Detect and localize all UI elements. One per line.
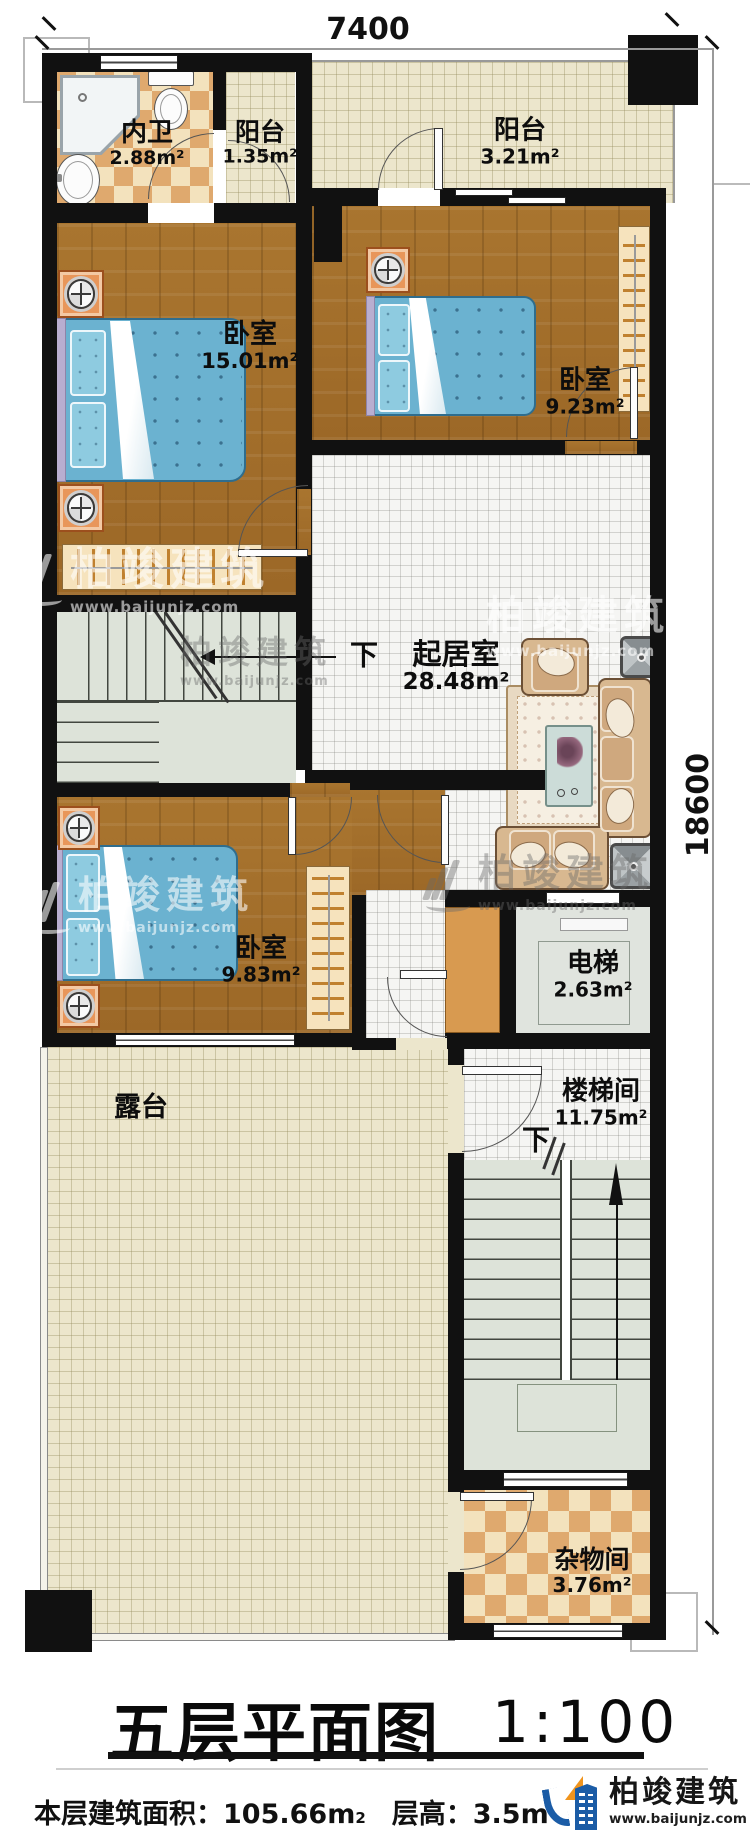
title-underline (108, 1752, 644, 1759)
logo-swoosh (542, 1786, 571, 1829)
wall (500, 890, 516, 1049)
stairs-direction-arrow (200, 649, 215, 665)
room-label-terrace: 露台 (114, 1093, 168, 1123)
divider-line (56, 1768, 708, 1770)
floor-height-label: 层高： (392, 1792, 473, 1831)
room-label-storage: 杂物间 3.76m² (553, 1546, 632, 1596)
room-label-bedroom1: 卧室 15.01m² (201, 320, 299, 374)
pillow (70, 330, 106, 396)
dimension-line-top (42, 48, 712, 50)
dimension-value: 18600 (681, 753, 716, 857)
nightstand (58, 984, 100, 1028)
room-label-elevator: 电梯 2.63m² (554, 949, 633, 1001)
door-opening (290, 783, 350, 797)
wall (296, 53, 312, 770)
stairs-center-divider (560, 1160, 572, 1380)
pillow (70, 402, 106, 468)
room-name: 卧室 (546, 366, 625, 395)
wardrobe-hangers (312, 875, 344, 1021)
wall (445, 1033, 666, 1049)
dimension-text-width: 7400 (298, 12, 438, 47)
wall-stub (314, 206, 342, 262)
door-leaf (400, 970, 447, 979)
plan-scale: 1:100 (492, 1688, 679, 1756)
door-opening (396, 1038, 447, 1050)
dimension-tick (665, 12, 680, 27)
bed-headboard (366, 296, 375, 416)
room-area: 9.83m² (222, 963, 301, 985)
door-leaf (462, 1066, 542, 1075)
pillow (66, 918, 100, 976)
stairs-up-line (616, 1205, 618, 1380)
nightstand-lamp (374, 256, 401, 285)
room-name: 起居室 (403, 638, 510, 670)
room-area: 3.21m² (481, 145, 560, 167)
window (115, 1034, 295, 1046)
nightstand (58, 270, 104, 318)
wall (42, 595, 296, 612)
room-area: 28.48m² (403, 670, 510, 696)
room-name: 阳台 (223, 118, 298, 146)
table-flowers (557, 737, 583, 773)
room-label-living: 起居室 28.48m² (403, 638, 510, 696)
down-marker-living: 下 (350, 639, 378, 670)
room-name: 阳台 (481, 116, 560, 145)
nightstand-lamp (66, 992, 92, 1019)
nightstand-lamp (66, 814, 92, 841)
logo-url-text: www.baijunjz.com (609, 1811, 747, 1827)
door-opening (378, 188, 440, 206)
down-marker-stairwell: 下 (522, 1124, 550, 1155)
room-label-bedroom3: 卧室 9.83m² (222, 934, 301, 986)
door-leaf (238, 549, 308, 557)
down-text: 下 (350, 638, 378, 671)
pillow (378, 360, 410, 412)
pillow (378, 304, 410, 356)
room-name: 卧室 (201, 320, 299, 350)
table-cup (557, 789, 565, 797)
room-name: 楼梯间 (555, 1077, 648, 1106)
table-cup (571, 788, 578, 795)
window (100, 55, 178, 70)
down-text: 下 (522, 1123, 550, 1156)
stairs-lower-left-flight (464, 1160, 560, 1380)
room-name: 卧室 (222, 934, 301, 963)
wall (42, 783, 290, 797)
room-label-balcony-small: 阳台 1.35m² (223, 118, 298, 167)
dimension-value: 7400 (326, 12, 410, 47)
door-opening (148, 203, 214, 223)
column (628, 35, 698, 105)
toilet-tank (148, 71, 194, 86)
door-leaf (441, 795, 449, 865)
plan-title: 五层平面图 (110, 1682, 440, 1774)
room-area: 3.76m² (553, 1574, 632, 1596)
nightstand-lamp (67, 279, 96, 309)
floor-area-value: 105.66m (223, 1799, 355, 1830)
extension-line (714, 183, 750, 185)
logo-building (575, 1784, 597, 1830)
room-name: 内卫 (110, 119, 185, 148)
stairs-direction-line (214, 656, 336, 658)
room-area: 1.35m² (223, 146, 298, 167)
door-leaf (460, 1492, 534, 1501)
floor-info: 本层建筑面积：105.66m2层高：3.5m (34, 1792, 549, 1831)
dimension-tick (42, 16, 57, 31)
floor-area-label: 本层建筑面积： (34, 1792, 223, 1831)
window (493, 1624, 623, 1638)
window (503, 1472, 628, 1487)
nightstand (58, 806, 100, 850)
wall (42, 53, 57, 1047)
coffee-table (545, 725, 593, 807)
pillow (66, 854, 100, 912)
company-logo-icon (543, 1776, 601, 1834)
duct-shaft (445, 907, 500, 1033)
sink (56, 154, 100, 206)
room-area: 11.75m² (555, 1106, 648, 1128)
logo-windows (588, 1794, 593, 1824)
room-label-bedroom2: 卧室 9.23m² (546, 366, 625, 418)
logo-windows (579, 1792, 585, 1824)
room-label-bathroom: 内卫 2.88m² (110, 119, 185, 169)
room-area: 15.01m² (201, 350, 299, 374)
room-area: 2.88m² (110, 148, 185, 169)
floor-area-sup: 2 (355, 1809, 365, 1827)
nightstand (58, 484, 104, 532)
logo-brand-text: 柏竣建筑 (609, 1776, 747, 1809)
room-label-stairwell: 楼梯间 11.75m² (555, 1077, 648, 1129)
plan-title-text: 五层平面图 (110, 1697, 440, 1771)
door-leaf (434, 128, 443, 190)
room-area: 9.23m² (546, 395, 625, 417)
wall (352, 895, 366, 1038)
terrace-parapet-left (40, 1047, 48, 1640)
room-area: 2.63m² (554, 978, 633, 1000)
stairs-up-arrow (609, 1163, 623, 1205)
wall (352, 1038, 396, 1050)
sink-basin (63, 161, 93, 199)
floor-terrace (47, 1047, 448, 1633)
shower-drain (78, 93, 87, 102)
seat-cushion (600, 736, 634, 782)
sliding-door-leaf (508, 197, 566, 204)
stairs-landing-outline (517, 1384, 617, 1432)
company-logo: 柏竣建筑 www.baijunjz.com (543, 1776, 747, 1834)
wardrobe-bedroom3 (306, 866, 350, 1030)
floor-plan-page: 内卫 2.88m² 阳台 1.35m² 阳台 3.21m² 卧室 15.01m²… (0, 0, 750, 1842)
door-leaf (288, 797, 296, 855)
door-leaf (630, 367, 638, 439)
dimension-text-height: 18600 (682, 735, 716, 875)
door-opening (565, 441, 637, 454)
room-name: 露台 (114, 1093, 168, 1123)
room-label-balcony-large: 阳台 3.21m² (481, 116, 560, 168)
terrace-parapet-bottom (40, 1633, 455, 1641)
nightstand (366, 247, 410, 293)
room-name: 杂物间 (553, 1546, 632, 1574)
wardrobe-bedroom1 (62, 544, 262, 590)
bed-headboard (56, 318, 66, 482)
sliding-door-leaf (455, 189, 513, 196)
elevator-door (546, 892, 620, 904)
floor-height-value: 3.5m (473, 1799, 549, 1830)
room-name: 电梯 (554, 949, 633, 978)
nightstand-lamp (67, 493, 96, 523)
wardrobe-hangers (71, 549, 253, 585)
wall (650, 203, 666, 1640)
column (25, 1590, 92, 1652)
elevator-sill (560, 918, 628, 931)
plan-scale-text: 1:100 (492, 1688, 679, 1756)
stairs-upper-lower-treads (57, 702, 159, 783)
